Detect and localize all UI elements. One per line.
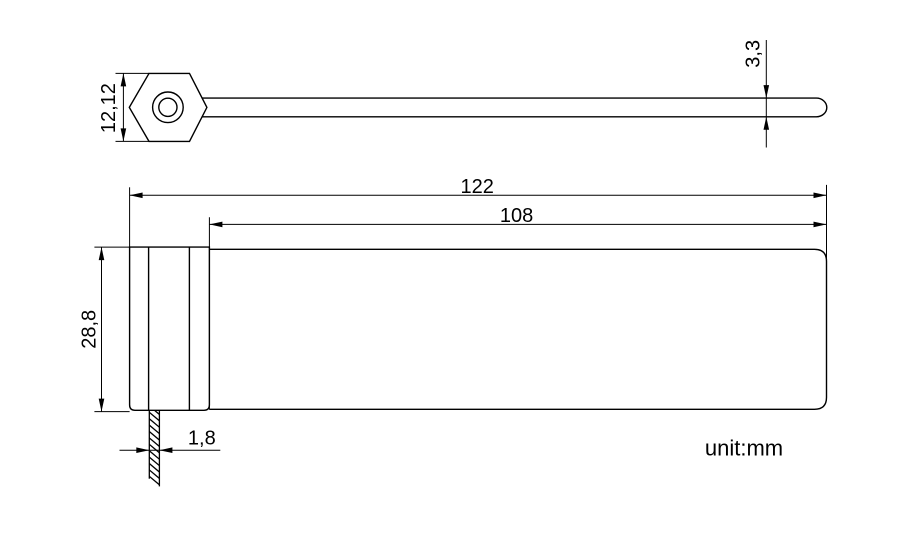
svg-text:108: 108	[500, 205, 533, 227]
svg-text:28,8: 28,8	[79, 310, 101, 349]
svg-text:122: 122	[461, 176, 494, 198]
svg-text:1,8: 1,8	[188, 427, 216, 449]
svg-text:12,12: 12,12	[98, 83, 120, 133]
svg-text:3,3: 3,3	[743, 40, 765, 68]
svg-text:unit:mm: unit:mm	[705, 436, 783, 461]
